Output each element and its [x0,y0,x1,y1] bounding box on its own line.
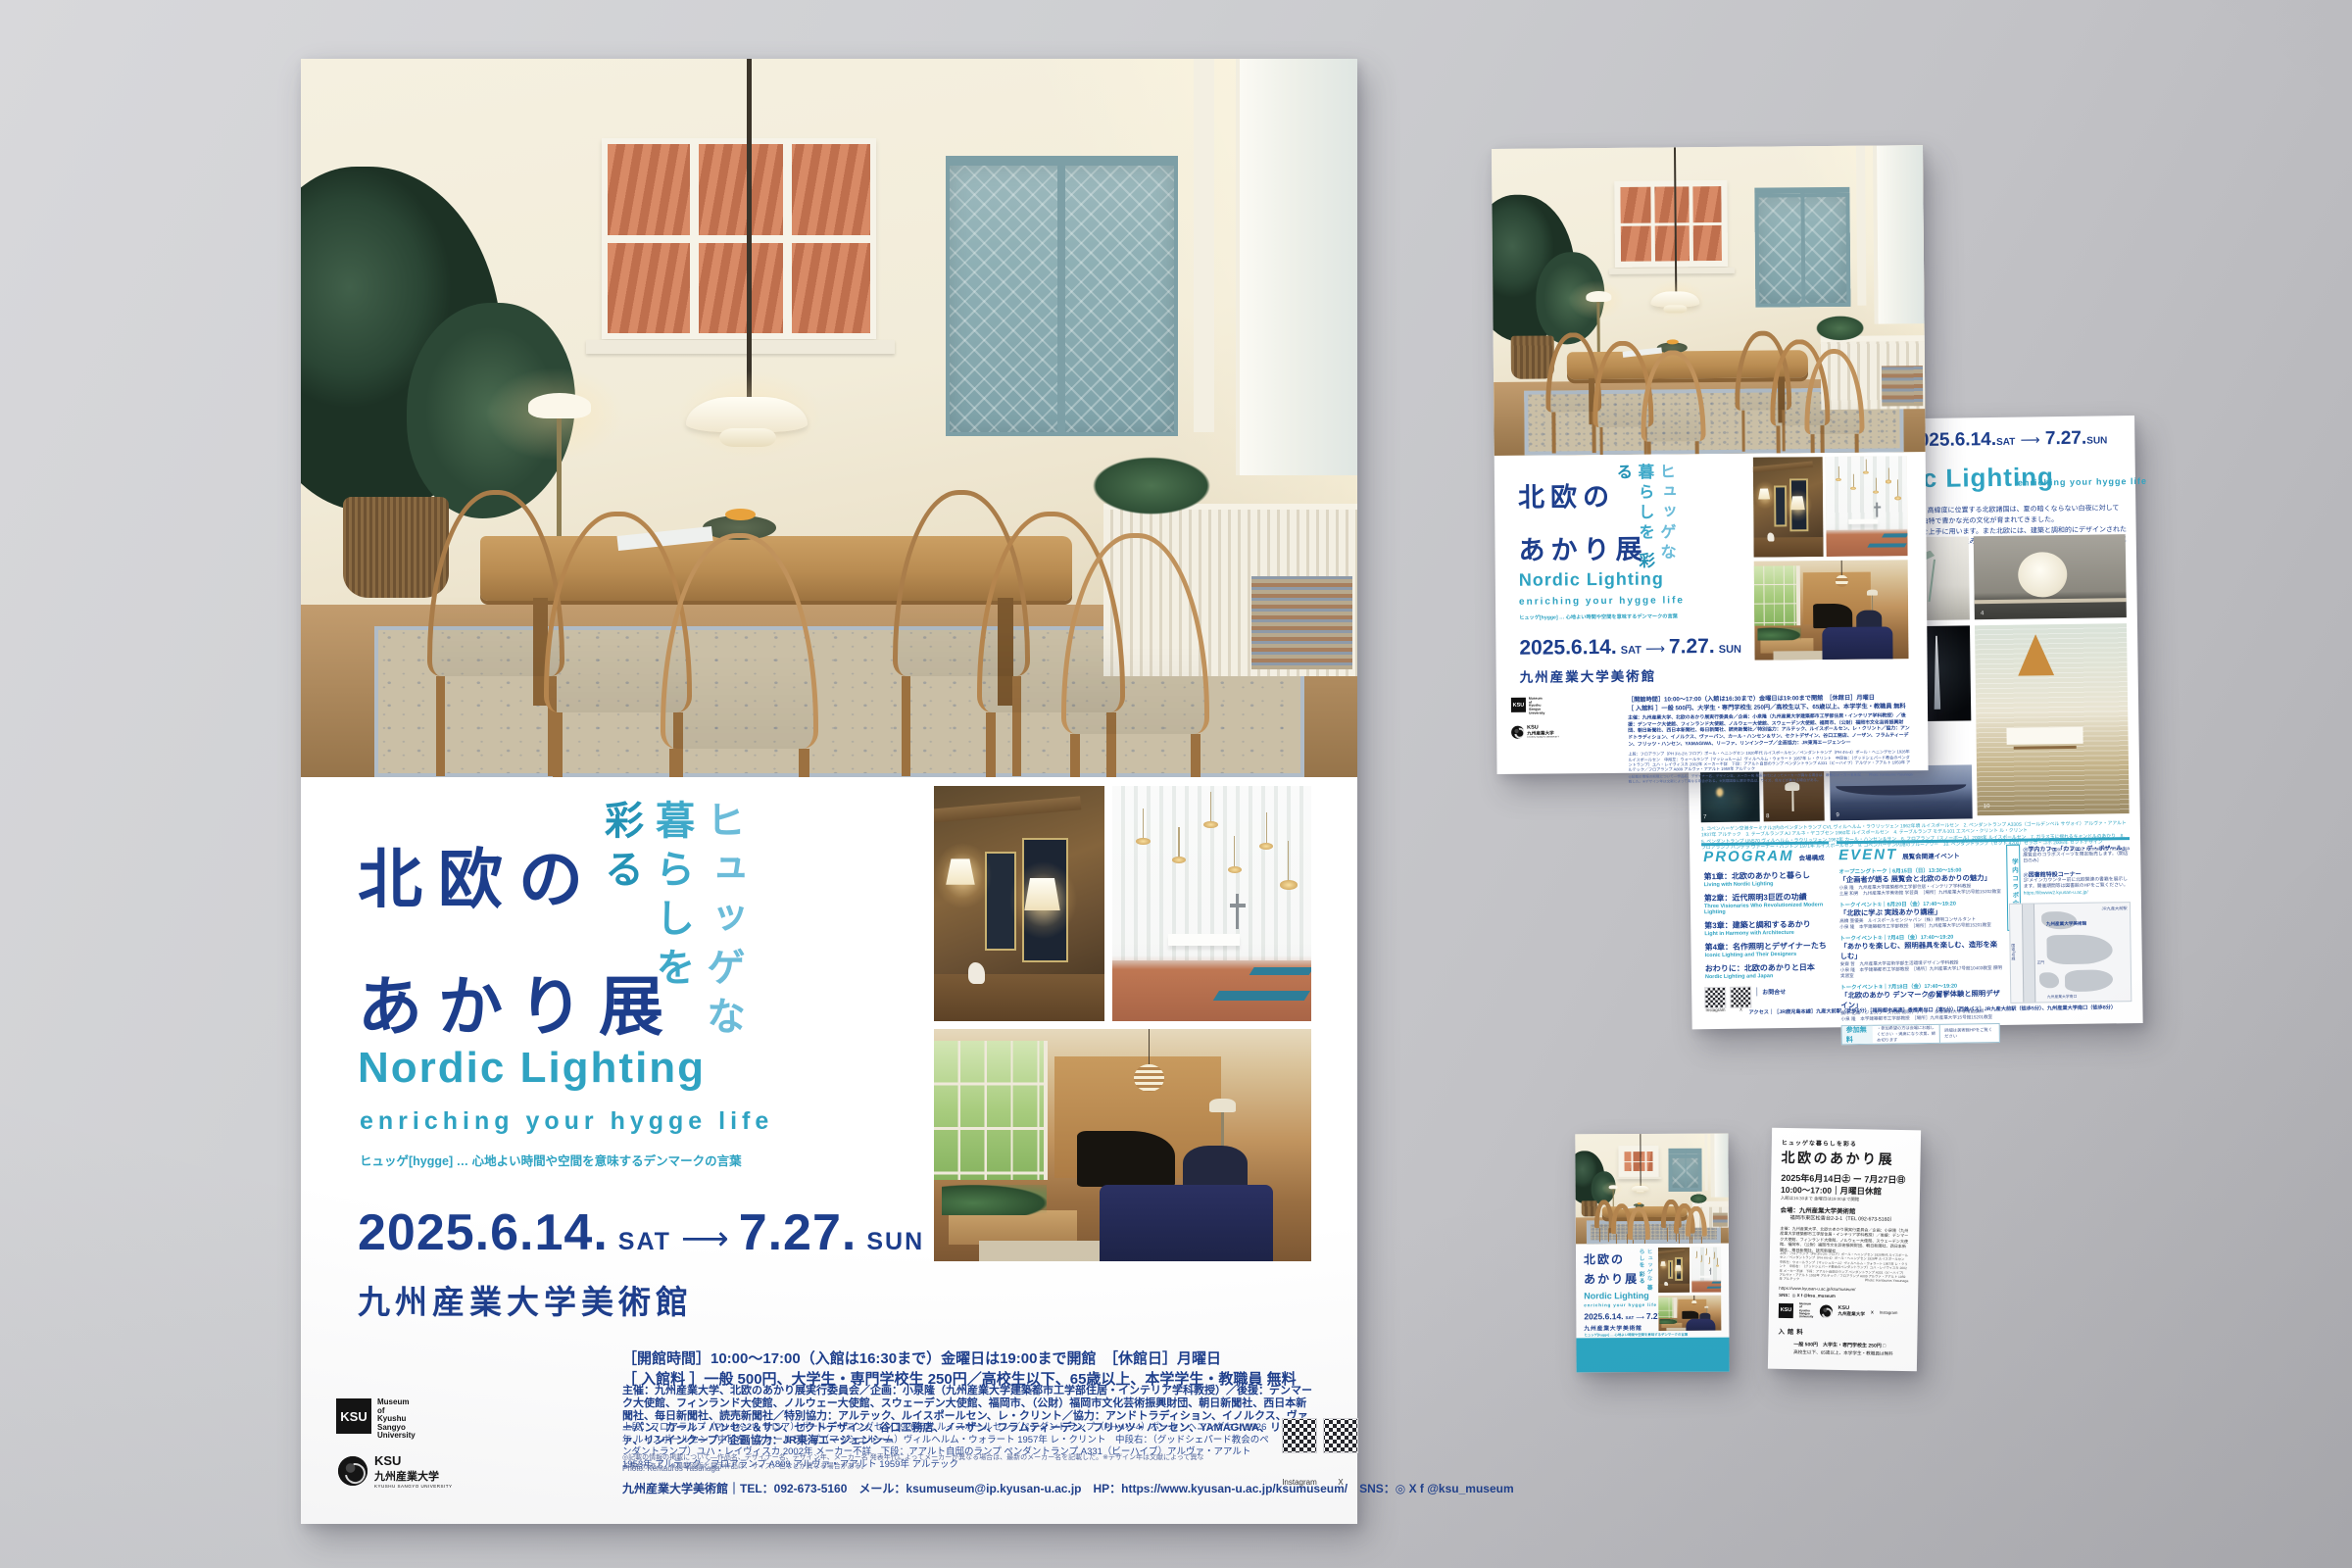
program-en: Three Visionaries Who Revolutionized Mod… [1704,902,1834,915]
museum-logo: KSU Museum of Kyushu Sangyo University [336,1398,416,1441]
ph-pendant-inner [719,428,776,447]
ksu-logo-mark: KSU [336,1398,371,1434]
univ-logo-ja: 九州産業大学 [1837,1311,1865,1317]
tb-organizers: 主催：九州産業大学、北欧のあかり展実行委員会／企画：小泉隆（九州産業大学建築都市… [1780,1226,1909,1254]
collab-item-desc: 展覧会のコラボスイーツを限定販売します。（開店日のみ） [2023,852,2130,865]
qr-label: Instagram [1705,1007,1725,1012]
map-south-label: 九州産業大学南口 [2047,995,2077,1000]
museum-logo-text: Museum of Kyushu Sangyo University [377,1398,416,1441]
program-en: Iconic Lighting and Their Designers [1705,951,1835,958]
book-stack [1251,576,1351,669]
tb-note: 入館は16:30まで 金曜日は19:00まで開館 [1781,1196,1859,1202]
photo-globe-lamp: 4 [1974,534,2127,619]
event-item: トークイベント③｜7月18日（金）17:40～19:20 「北欧のあかり デンマ… [1840,981,2004,1022]
date-end: 7.27. [2045,428,2087,450]
poster-info: ［開館時間］10:00～17:00（入館は16:30まで）金曜日は19:00まで… [622,1348,1313,1390]
program-item: 第1章：北欧のあかりと暮らし Living with Nordic Lighti… [1703,869,1833,888]
date-start-day: SAT [1621,645,1641,657]
qr-label: Instagram [1279,1478,1320,1487]
qr-code-instagram [1283,1419,1316,1452]
map-museum-label: 九州産業大学美術館 [2046,921,2086,928]
event-item: オープニングトーク｜6月15日（日）13:30～15:00 「企画者が語る 展覧… [1838,865,2001,897]
right-window [1710,1134,1728,1198]
date-end-day: SUN [2086,435,2107,446]
date-end: 7.27. [739,1203,857,1262]
brass-pendant [1850,486,1856,489]
flyer-museum-logo: KSU Museum of Kyushu Sangyo University [1511,698,1545,716]
univ-logo-mark: KSU [374,1453,453,1468]
blue-bench [1867,543,1907,547]
wall-lamp-shade [1024,878,1060,911]
ticket-teal-band [1576,1338,1729,1373]
event-section: EVENT 展覧会関連イベント オープニングトーク｜6月15日（日）13:30～… [1838,845,2004,1045]
flyer-photo-wall-lamps [1753,457,1824,558]
pendant-cord [747,59,752,400]
tagline-word: ヒュッゲな [697,800,748,1054]
cross [1230,904,1246,907]
garden-window [1658,1298,1677,1319]
armchair [1856,610,1883,628]
flyer-photo-credit: Photo: Kentauros Yasunaga [1869,772,1913,782]
flyer-photo-living-room [1754,560,1909,660]
mockup-scene: 2025.6.14.SAT ⟶ 7.27.SUN Nordic Lighting… [0,0,2352,1568]
event-speaker: 小泉 隆 本学建築都市工学部教授 ［場所］九州産業大学17号館10403教室 照… [1840,965,2003,979]
ticket-photo-church [1691,1248,1721,1293]
univ-logo-en: KYUSHU SANGYO UNIVERSITY [374,1484,453,1489]
blue-bench [1213,991,1310,1001]
date-end-day: SUN [866,1228,924,1256]
cabinet-divider [1057,160,1066,433]
flyer-back-subtitle: enriching your hygge life [2018,476,2147,488]
poster-hours: ［開館時間］10:00～17:00（入館は16:30まで）金曜日は19:00まで… [622,1348,1313,1369]
free-label: 参加無料 [1842,1026,1874,1044]
collab-item-desc: 1Fメインカウンター前に北欧関連の書籍を展示します。開催期間等は図書館のHPをご… [2024,877,2131,891]
tb-tagline: ヒュッゲな暮らしを彩る [1782,1138,1857,1148]
cross [1877,502,1878,516]
date-start-day: SAT [618,1228,671,1256]
flyer-hygge-note: ヒュッゲ[hygge] … 心地よい時間や空間を意味するデンマークの言葉 [1519,612,1678,620]
book-stack [1713,1212,1728,1227]
cabinet-divider [1685,1149,1686,1191]
program-item: 第2章：近代照明3巨匠の功績 Three Visionaries Who Rev… [1704,891,1834,915]
brass-pendant [1136,838,1150,845]
ksu-crest-icon [1511,725,1524,738]
orange [1637,1202,1641,1204]
map-building [2046,934,2113,964]
map-building [2065,969,2113,992]
flyer-date: 2025.6.14.SAT ⟶ 7.27.SUN [1519,635,1741,661]
floor-lamp-shade [528,393,592,418]
orange [1667,339,1679,344]
window-bar [1620,1161,1658,1162]
ticket-photo-living-room [1658,1296,1721,1331]
right-window [1873,145,1924,323]
ticket-back: ヒュッゲな暮らしを彩る 北欧のあかり展 2025年6月14日㊏ ー 7月27日㊐… [1768,1128,1921,1372]
ticket-hygge-note: ヒュッゲ[hygge] … 心地よい時間や空間を意味するデンマークの言葉 [1584,1332,1688,1338]
event-speaker: 小泉 隆 本学建築都市工学部教授 ［場所］九州産業大学15号館15201教室 [1839,922,2002,930]
brass-pendant [1886,480,1891,483]
window-frame [1856,146,1866,306]
window-plants [942,1185,1048,1215]
ph-pendant-shade [686,397,808,433]
map-road [2022,904,2035,1002]
flyer-en-title: Nordic Lighting [1519,568,1664,590]
blue-sofa [1100,1185,1273,1261]
univ-logo-en: KYUSHU SANGYO UNIVERSITY [1527,736,1559,738]
tb-sns: SNS：◎ X f @ksu_museum [1779,1293,1836,1299]
program-item: 第3章：建築と調和するあかり Light in Harmony with Arc… [1704,918,1834,937]
tagline-word: ヒュッゲな [1645,1249,1651,1282]
poster-en-title: Nordic Lighting [358,1044,706,1093]
swan-figurine [1665,1281,1668,1285]
free-detail: 詳細は美術館HPをご覧ください [1939,1024,1999,1043]
photo-number: 9 [1836,813,1838,819]
window-bar [690,141,700,335]
window-frame [1194,59,1215,432]
poster-hygge-note: ヒュッゲ[hygge] … 心地よい時間や空間を意味するデンマークの言葉 [360,1151,742,1169]
qr-code-x [1324,1419,1357,1452]
brass-pendant [1203,821,1217,828]
blue-bench [1882,533,1907,537]
blue-sofa [1687,1319,1715,1331]
brass-pendant [1280,880,1298,890]
tb-fee1: 一般 500円 大学生・専門学校生 250円 □ [1793,1341,1886,1349]
flyer-photo-church [1826,456,1908,557]
museum-logo-text: Museum of Kyushu Sangyo University [1529,698,1545,716]
museum-logo-text: Museum of Kyushu Sangyo University [1799,1302,1814,1319]
poster-photo-church [1112,786,1311,1021]
map-building [2039,972,2059,988]
window-plants [1757,627,1800,641]
poster-photo-wall-lamps [934,786,1104,1021]
photo-number: 4 [1981,612,1984,617]
wall-lamp-shade [1675,1265,1682,1271]
event-speaker: 土屋 和男 九州産業大学美術館 学芸員 ［場所］九州産業大学15号館15202教… [1839,889,2002,897]
book-stack [1882,367,1923,407]
poster-contact-line: 九州産業大学美術館｜TEL：092-673-5160 メール：ksumuseum… [622,1480,1514,1496]
arrow-glyph: ⟶ [681,1219,729,1258]
floor-lamp [1704,1305,1708,1307]
arrow-glyph: ⟶ [1645,640,1665,657]
ksu-logo-mark: KSU [1511,698,1526,712]
program-subheading: 会場構成 [1799,852,1825,861]
ph-pendant-inner [1664,305,1688,313]
flyer-back-date: 2025.6.14.SAT ⟶ 7.27.SUN [1908,427,2107,452]
ksu-crest-icon [1819,1304,1832,1317]
poster-en-subtitle: enriching your hygge life [360,1107,773,1136]
ticket-front: ヒュッゲな 暮らしを 彩る 北欧の あかり展 Nordic Lighting e… [1575,1134,1729,1373]
poster-title-line1: 北欧の [358,815,679,943]
poster-photo-living-room [934,1029,1311,1261]
brass-pendant [1259,843,1273,850]
poster-title: 北欧の あかり展 [358,815,679,1070]
cross [1874,507,1881,509]
cross [1236,894,1239,929]
date-start-day: SAT [1996,437,2015,448]
window-bar [1689,182,1693,266]
tb-logos: KSU Museum of Kyushu Sangyo University K… [1779,1302,1898,1321]
brass-pendant [1873,490,1879,493]
tb-fee2: 高校生以下、65歳以上、本学学生・教職員は無料 [1793,1349,1893,1357]
grand-piano [1813,604,1853,628]
window-bar [1645,1147,1647,1176]
flyer-admission: ［ 入館料 ］一般 500円、大学生・専門学校生 250円／高校生以下、65歳以… [1628,703,1912,713]
event-item: トークイベント①｜6月20日（金）17:40～19:20 「北欧に学ぶ 実践あか… [1839,899,2002,930]
flyer-en-subtitle: enriching your hygge life [1519,595,1685,607]
photo-secto-dining: 10 [1975,623,2130,815]
free-notes: ・参加希望の方は会場にお越しください ・満席になり次第、締め切ります [1873,1025,1939,1044]
ksu-crest-icon [338,1456,367,1486]
brass-pendant [1228,866,1242,873]
flyer-title-line1: 北欧の [1518,470,1647,524]
tb-url: https://www.kyusan-u.ac.jp/ksumuseum/ [1779,1286,1855,1292]
window-bar [783,141,793,335]
ticket-title: 北欧の あかり展 [1584,1249,1639,1289]
program-item: おわりに：北欧のあかりと日本 Nordic Lighting and Japan [1705,961,1835,980]
striped-pendant [1691,1300,1696,1304]
altar-table [1700,1276,1711,1278]
ticket-en-subtitle: enriching your hygge life [1584,1302,1657,1307]
event-heading: EVENT [1838,846,1897,863]
flyer-works-note: ◎記載の情報の掲載について—作品名、デザイナー名、デザイン年、メーカー名 発表年… [1629,772,1863,784]
flyer-front: ヒュッゲな 暮らしを 彩る 北欧の あかり展 Nordic Lighting e… [1492,145,1929,774]
poster-venue: 九州産業大学美術館 [358,1276,693,1323]
tb-photo-credit: Photo: Kentauros Yasunaga [1865,1278,1909,1283]
tb-ig-label: Instagram [1880,1309,1898,1314]
arrow-glyph: ⟶ [1636,1314,1644,1321]
event-subheading: 展覧会関連イベント [1902,851,1960,861]
ticket-title-line2: あかり展 [1584,1269,1639,1289]
wall-lamp-shade [1790,496,1805,510]
sideboard [1753,537,1823,558]
floor-lamp [1867,590,1878,596]
altar-table [1849,519,1879,524]
floor-lamp [1209,1099,1236,1112]
photo-number: 8 [1766,814,1769,820]
program-section: PROGRAM 会場構成 第1章：北欧のあかりと暮らし Living with … [1703,847,1835,980]
blue-bench [1706,1287,1721,1289]
date-start: 2025.6.14. [1519,636,1616,661]
window-sill [586,340,895,354]
ticket-en-title: Nordic Lighting [1584,1291,1649,1300]
flyer-hero-photo [1492,145,1926,456]
window-bar [608,235,872,243]
date-start-day: SAT [1626,1315,1635,1320]
ticket-venue: 九州産業大学美術館 [1584,1323,1641,1332]
univ-logo-ja: 九州産業大学 [374,1468,453,1484]
photo-number: 10 [1984,804,1990,809]
ticket-photo-wall-lamps [1658,1248,1690,1293]
sideboard [934,974,1104,1021]
garden-window [934,1041,1048,1180]
floor-lamp-shade [1586,290,1611,301]
sideboard [1658,1284,1690,1293]
map-road-label: 国道3号線 [2012,944,2017,960]
program-en: Nordic Lighting and Japan [1705,972,1835,980]
window-bar [1650,183,1655,267]
altar-table [1168,934,1240,946]
cross [1709,1270,1711,1271]
ticket-hero-photo [1575,1134,1729,1245]
striped-pendant [1134,1064,1164,1092]
qr-label: X [1324,1478,1357,1487]
flyer-info: ［開館時間］10:00～17:00（入館は16:30まで）金曜日は19:00まで… [1628,694,1913,784]
flyer-venue: 九州産業大学美術館 [1520,665,1657,686]
grand-piano [1077,1131,1175,1187]
date-end-day: SUN [1719,644,1741,656]
date-start: 2025.6.14. [1584,1311,1623,1321]
free-admission-box: 参加無料 ・参加希望の方は会場にお越しください ・満席になり次第、締め切ります … [1841,1023,2000,1045]
arrow-glyph: ⟶ [2020,431,2039,447]
armchair [1183,1146,1247,1190]
photo-number: 7 [1703,814,1706,820]
brass-pendant [1894,496,1902,500]
flyer-organizers: 主催：九州産業大学、北欧のあかり展実行委員会／企画：小泉隆（九州産業大学建築都市… [1628,713,1912,748]
university-logo: KSU 九州産業大学 KYUSHU SANGYO UNIVERSITY [338,1453,453,1489]
date-end: 7.27. [1669,635,1715,659]
flyer-title: 北欧の あかり展 [1518,470,1648,577]
tagline-word: ヒュッゲな [1657,463,1676,563]
event-title: 「あかりを楽しむ、照明器具を楽しむ、造形を楽しむ」 [1839,940,2002,961]
orange [725,509,755,520]
ticket-tagline-vertical: ヒュッゲな 暮らしを 彩る [1637,1249,1652,1292]
flyer-university-logo: KSU 九州産業大学 KYUSHU SANGYO UNIVERSITY [1511,724,1559,738]
flyer-works-credit: 上段：フロアランプ（PH 3½-2½ フロア）ポール・ヘニングセン 1920年代… [1628,749,1912,772]
program-en: Living with Nordic Lighting [1704,880,1834,888]
sns-icons-row: ◎ X f [1878,990,1995,1001]
qr-code-x [1731,988,1750,1007]
qr-code-instagram [1705,988,1725,1007]
tb-fee-label: 入館料 [1778,1327,1805,1336]
poster-date: 2025.6.14.SAT ⟶ 7.27.SUN [358,1203,924,1262]
garden-window [1754,565,1801,625]
program-en: Light in Harmony with Architecture [1704,929,1834,937]
tb-addr: 福岡市東区松香台2-3-1（TEL 092-673-5160） [1789,1214,1894,1223]
blue-sofa [1822,626,1893,660]
tb-title: 北欧のあかり展 [1781,1148,1894,1169]
collab-items: ◎学内カフェ「カフェ・デ・ボザール」 展覧会のコラボスイーツを限定販売します。（… [2023,843,2131,896]
collab-item-url: https://libwww2.kyusan-u.ac.jp/ [2024,890,2131,897]
blue-bench [1249,967,1311,975]
swan-figurine [968,962,985,984]
map-station-label: JR九産大前駅 [2101,906,2127,911]
main-poster: ヒュッゲな 暮らしを 彩る 北欧の あかり展 Nordic Lighting e… [301,59,1357,1524]
plant-basket [343,497,449,598]
poster-photo-credit: Photo: Kentauros Yasunaga [622,1464,719,1473]
program-heading: PROGRAM [1703,848,1794,865]
tb-x-label: X [1871,1309,1874,1314]
striped-pendant [1836,575,1848,587]
window-plants [1660,1319,1678,1324]
ksu-logo-mark: KSU [1779,1303,1793,1318]
ticket-title-line1: 北欧の [1584,1249,1639,1269]
inquiry-label: お問合せ [1756,987,1786,996]
event-item: トークイベント②｜7月4日（金）17:40～19:20 「あかりを楽しむ、照明器… [1839,932,2003,979]
poster-hero-photo [301,59,1357,777]
campus-map: JR九産大前駅 九州産業大学美術館 国道3号線 正門 九州産業大学南口 [2009,902,2131,1004]
map-gate-label: 正門 [2037,960,2045,965]
program-item: 第4章：名作照明とデザイナーたち Iconic Lighting and The… [1704,940,1834,958]
window-bar [1632,1147,1634,1176]
window-frame [1704,1134,1707,1191]
date-start: 2025.6.14. [358,1203,609,1262]
right-window [1236,59,1357,475]
event-speaker: 小泉 隆 本学建築都市工学部教授 ［場所］九州産業大学15号館15201教室 [1841,1014,2004,1022]
program-ja: 第4章：名作照明とデザイナーたち [1704,940,1834,953]
